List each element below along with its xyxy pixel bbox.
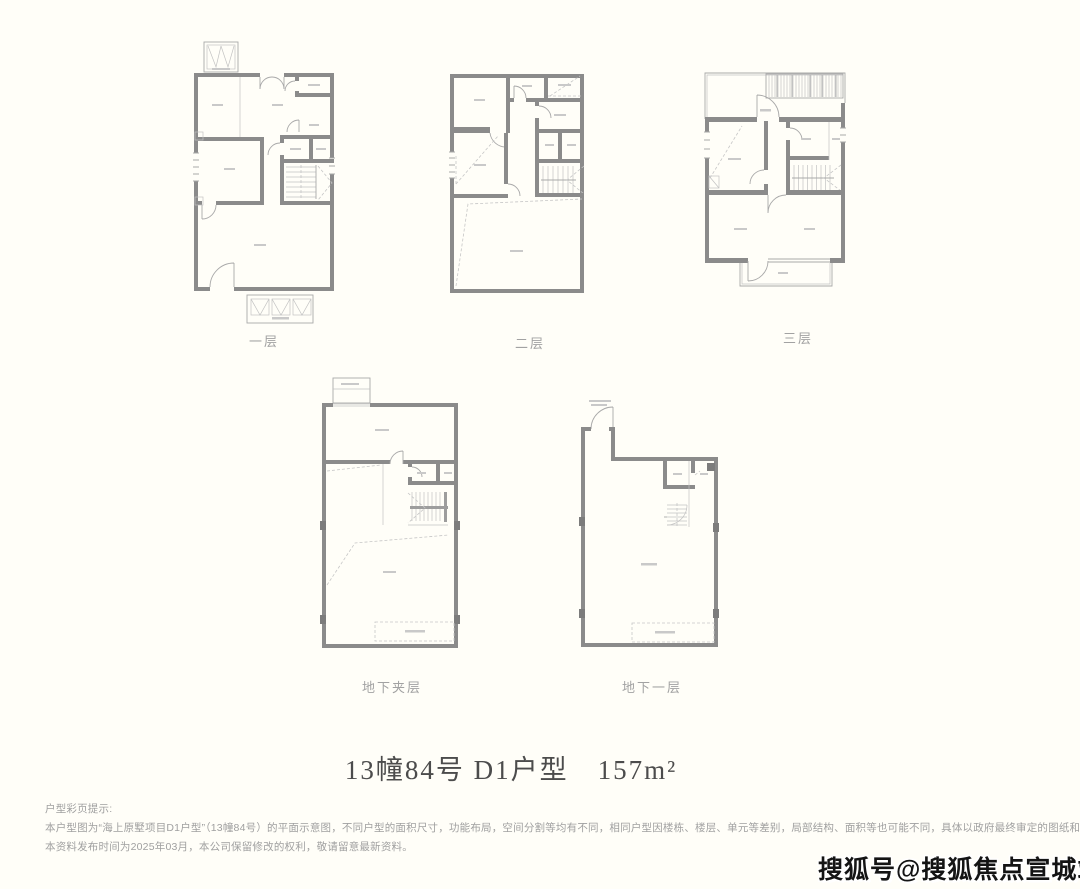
floor-label-third: 三层 (783, 328, 813, 347)
first-floor-plan (188, 38, 340, 330)
disclaimer-block: 户型彩页提示: 本户型图为“海上原墅项目D1户型”（13幢84号）的平面示意图，… (45, 800, 1055, 857)
disclaimer-heading: 户型彩页提示: (45, 800, 1055, 819)
floor-label-basement-mezzanine: 地下夹层 (362, 677, 422, 696)
basement-mezzanine-plan (317, 375, 463, 651)
floor-label-first: 一层 (249, 331, 279, 350)
unit-title: 13幢84号 D1户型 157m² (345, 748, 677, 787)
second-floor-plan-drawing (446, 72, 588, 296)
floorplan-page: 一层 二层 三层 地下夹层 地下一层 13幢84号 D1户型 157m² 户型彩… (0, 0, 1080, 889)
second-floor-plan (446, 72, 588, 296)
disclaimer-body: 本户型图为“海上原墅项目D1户型”（13幢84号）的平面示意图，不同户型的面积尺… (45, 819, 1055, 838)
first-floor-plan-drawing (188, 38, 340, 330)
basement-mezzanine-drawing (317, 375, 463, 651)
third-floor-plan-drawing (702, 70, 848, 296)
floor-label-basement-first: 地下一层 (622, 677, 682, 696)
third-floor-plan (702, 70, 848, 296)
basement-first-drawing (577, 397, 719, 651)
floor-label-second: 二层 (515, 333, 545, 352)
basement-first-plan (577, 397, 719, 651)
watermark-sohu: 搜狐号@搜狐焦点宣城站 (818, 850, 1080, 886)
